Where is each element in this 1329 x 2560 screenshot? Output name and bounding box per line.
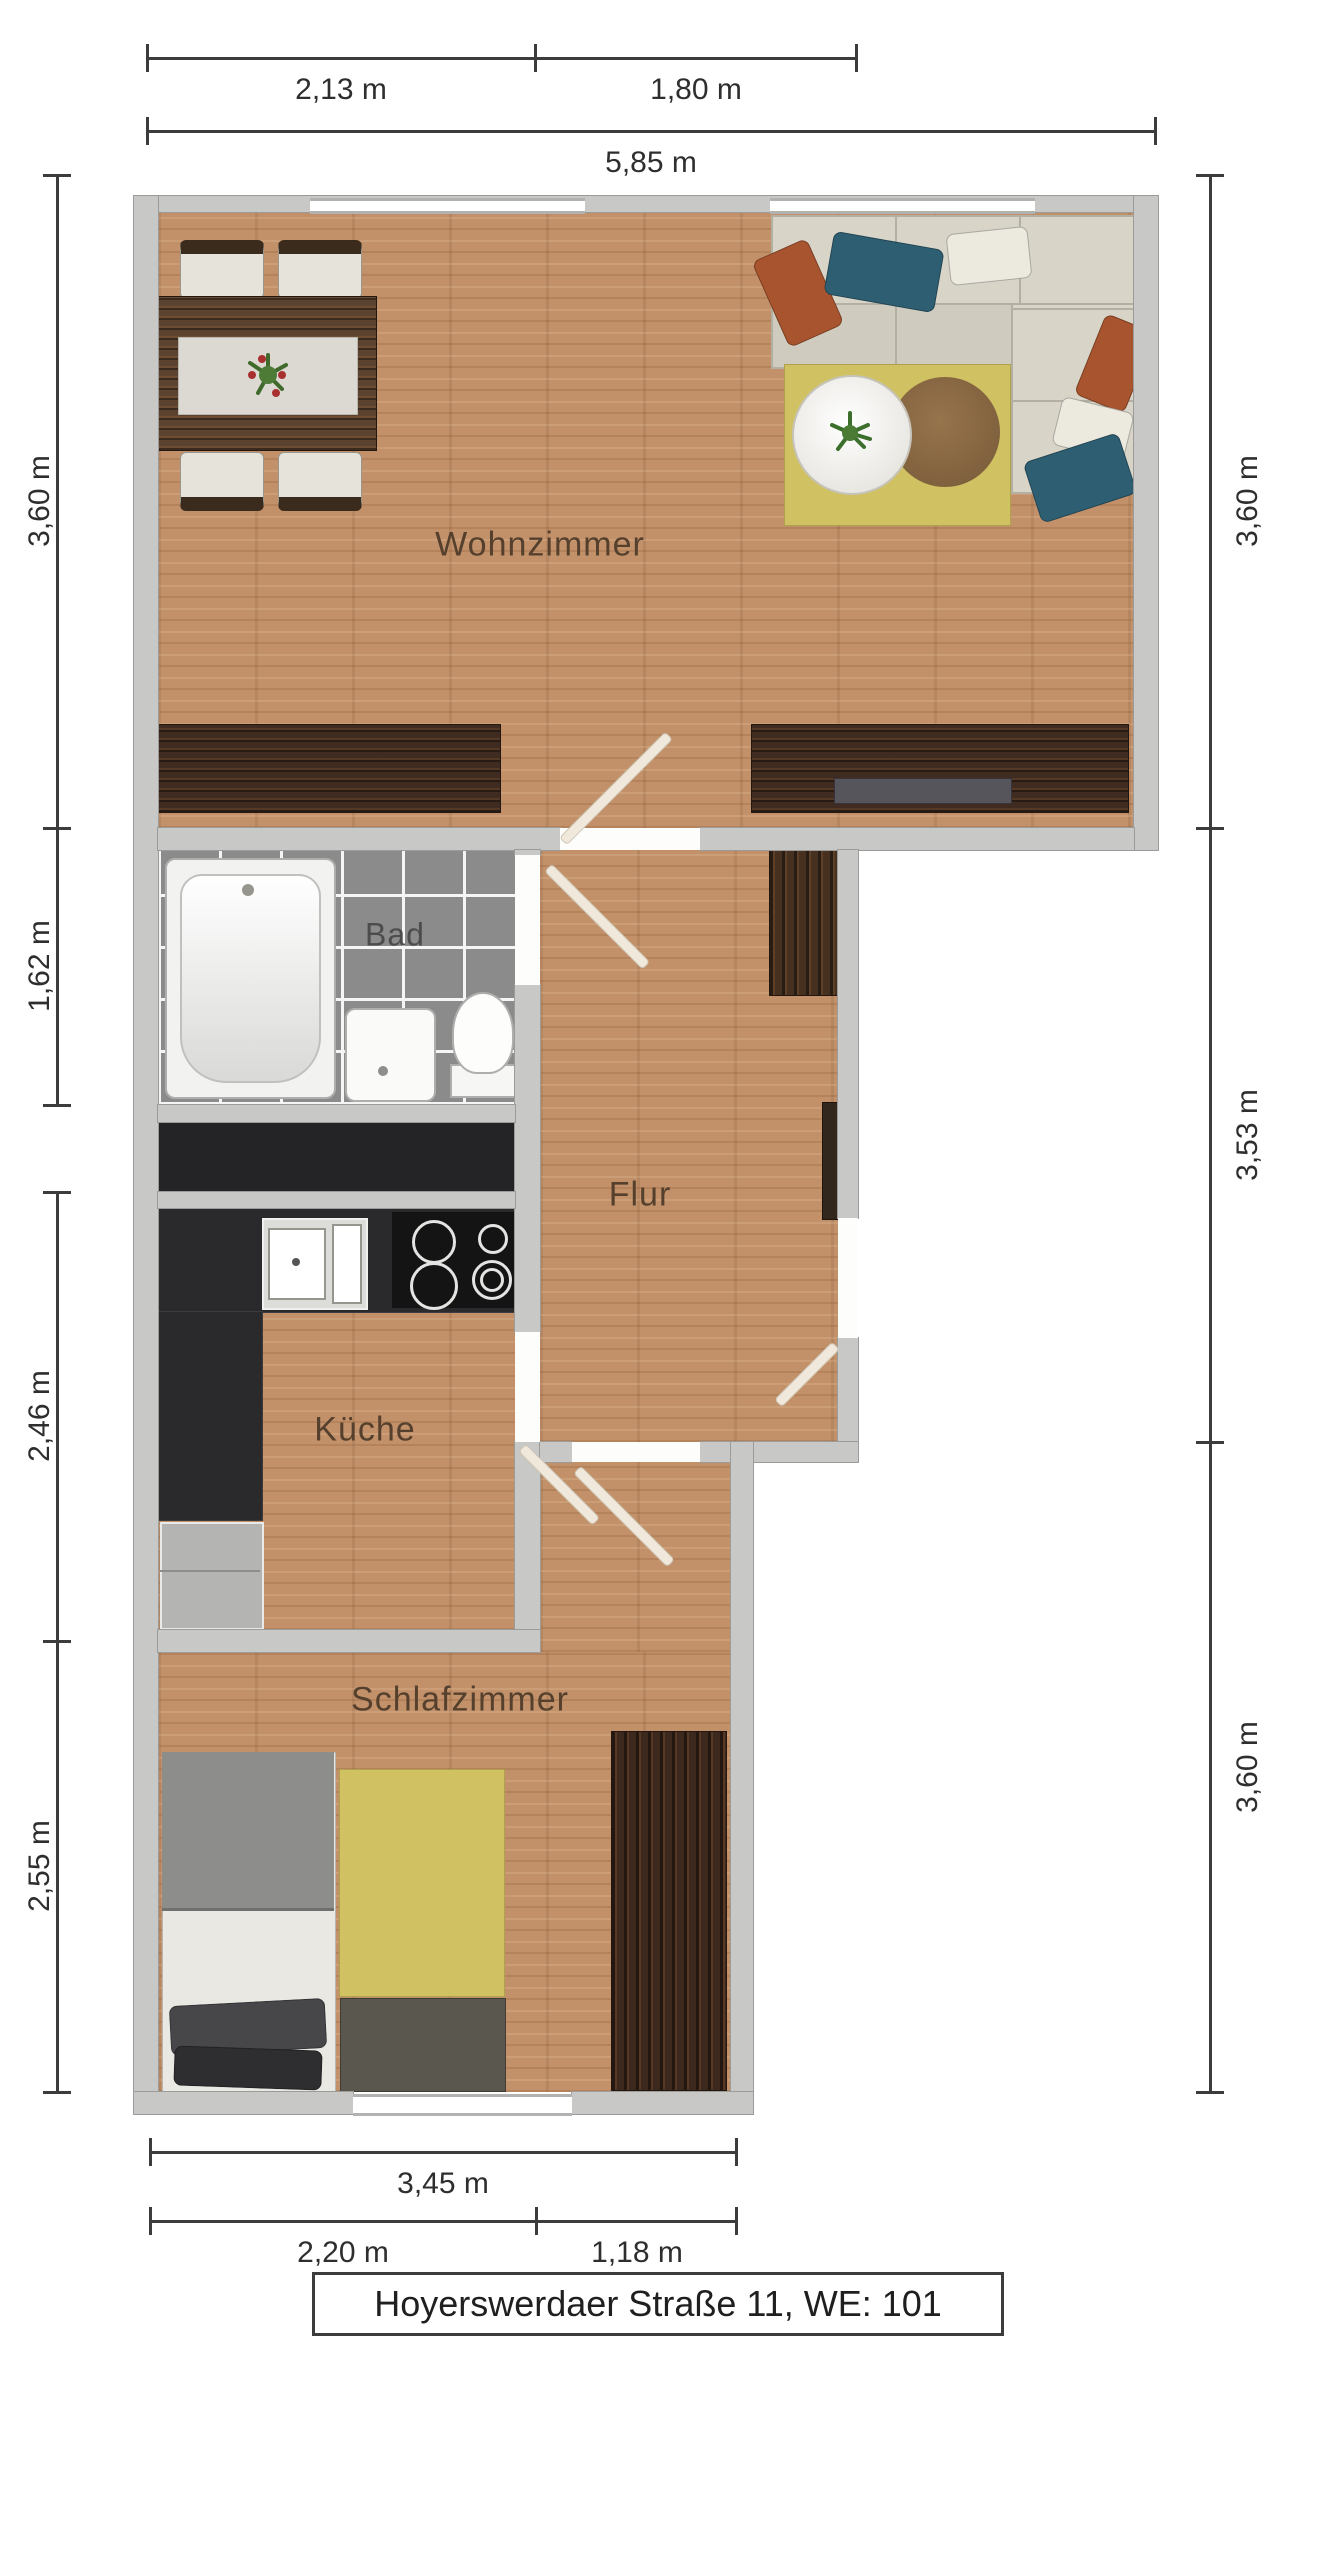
washbasin: [345, 1008, 436, 1102]
living-window: [770, 198, 1035, 214]
stove-burner: [478, 1224, 508, 1254]
hallway-label: Flur: [609, 1176, 672, 1215]
bedroom-rug: [340, 1770, 504, 1996]
dining-chair: [278, 452, 362, 511]
stove-burner: [410, 1262, 458, 1310]
tick: [1154, 117, 1157, 145]
dim-line-top-1: [147, 57, 857, 60]
tick: [43, 174, 71, 177]
wall-bedroom-top: [158, 1630, 540, 1652]
bedroom-label: Schlafzimmer: [351, 1681, 569, 1720]
dim-right-living: 3,60 m: [1231, 455, 1265, 547]
bedroom-window: [353, 2094, 572, 2116]
dining-chair: [180, 240, 264, 299]
plant-icon: [238, 345, 298, 405]
kitchen-fridge-divider: [160, 1570, 260, 1572]
tick: [534, 44, 537, 72]
kitchen-label: Küche: [314, 1411, 415, 1450]
tick: [149, 2138, 152, 2166]
bedroom-door-opening: [572, 1442, 700, 1462]
dim-left-bath: 1,62 m: [23, 920, 57, 1012]
floor-plan: Wohnzimmer Bad Flur Küche Schlafzimmer 2…: [0, 0, 1329, 2560]
tick: [535, 2207, 538, 2235]
tick: [735, 2207, 738, 2235]
dim-top-total: 5,85 m: [605, 146, 697, 180]
kitchen-counter-left: [158, 1312, 262, 1520]
wall-bath-storage: [158, 1105, 515, 1122]
bed-blanket: [162, 1752, 334, 1911]
living-door-opening: [560, 828, 700, 850]
dining-chair: [278, 240, 362, 299]
tick: [1196, 174, 1224, 177]
tv: [834, 778, 1012, 804]
kitchen-drainer: [332, 1224, 362, 1304]
wall-living-bottom-right: [700, 828, 1134, 850]
dim-line-bottom-1: [150, 2151, 737, 2154]
wall-kitchen-hall: [515, 1442, 540, 1652]
dim-line-top-2: [147, 130, 1156, 133]
wall-right-living: [1134, 196, 1158, 850]
tick: [43, 1191, 71, 1194]
kitchen-fridge: [160, 1522, 264, 1630]
storage-dark-zone: [158, 1122, 515, 1192]
living-room-label: Wohnzimmer: [435, 526, 645, 565]
stove-burner: [412, 1220, 456, 1264]
bedroom-wardrobe: [612, 1732, 726, 2090]
wall-hall-right-a: [838, 850, 858, 1218]
tick: [43, 1640, 71, 1643]
tick: [1196, 1441, 1224, 1444]
sink-drain-dot: [292, 1258, 300, 1266]
stove-burner: [472, 1260, 512, 1300]
bed-pillow: [173, 2045, 322, 2090]
wall-hall-bottom-b: [700, 1442, 731, 1462]
tick: [855, 44, 858, 72]
bathtub-inner: [180, 874, 321, 1083]
hall-wardrobe: [770, 838, 838, 995]
dim-right-bedroom: 3,60 m: [1231, 1721, 1265, 1813]
wall-hall-bottom-a: [540, 1442, 572, 1462]
entry-door-opening: [838, 1218, 858, 1338]
dim-bottom-seg2: 1,18 m: [591, 2236, 683, 2270]
sideboard: [158, 725, 500, 812]
wall-bedroom-right: [731, 1442, 753, 2114]
washbasin-drain: [378, 1066, 388, 1076]
address-caption: Hoyerswerdaer Straße 11, WE: 101: [312, 2272, 1004, 2336]
stove-burner-ring: [480, 1268, 504, 1292]
dim-left-living: 3,60 m: [23, 455, 57, 547]
tick: [735, 2138, 738, 2166]
plant-icon: [822, 405, 878, 461]
wall-bath-hall-b: [515, 985, 540, 1332]
dim-line-right: [1209, 175, 1212, 2092]
living-window: [310, 198, 585, 214]
wall-bedroom-bottom-a: [134, 2092, 353, 2114]
tick: [1196, 827, 1224, 830]
tick: [43, 1104, 71, 1107]
dining-chair: [180, 452, 264, 511]
kitchen-door-opening: [515, 1332, 540, 1442]
nightstand: [340, 1998, 506, 2092]
tick: [1196, 2091, 1224, 2094]
bath-door-opening: [515, 855, 540, 985]
dim-bottom-seg1: 2,20 m: [297, 2236, 389, 2270]
tick: [146, 44, 149, 72]
tick: [149, 2207, 152, 2235]
dim-top-seg1: 2,13 m: [295, 73, 387, 107]
tick: [43, 827, 71, 830]
wall-kitchen-top: [158, 1192, 515, 1208]
tick: [43, 2091, 71, 2094]
dim-left-bedroom: 2,55 m: [23, 1820, 57, 1912]
wall-bedroom-bottom-b: [572, 2092, 753, 2114]
bathtub-faucet: [242, 884, 254, 896]
toilet-bowl: [452, 992, 514, 1074]
dim-right-hall: 3,53 m: [1231, 1089, 1265, 1181]
dim-line-bottom-2: [150, 2220, 737, 2223]
sofa-cushion-white: [946, 226, 1033, 286]
wall-left: [134, 196, 158, 2114]
dim-bottom-total: 3,45 m: [397, 2167, 489, 2201]
dim-left-kitchen: 2,46 m: [23, 1370, 57, 1462]
dim-top-seg2: 1,80 m: [650, 73, 742, 107]
bathroom-label: Bad: [365, 917, 425, 954]
wall-living-bottom-left: [158, 828, 560, 850]
tick: [146, 117, 149, 145]
